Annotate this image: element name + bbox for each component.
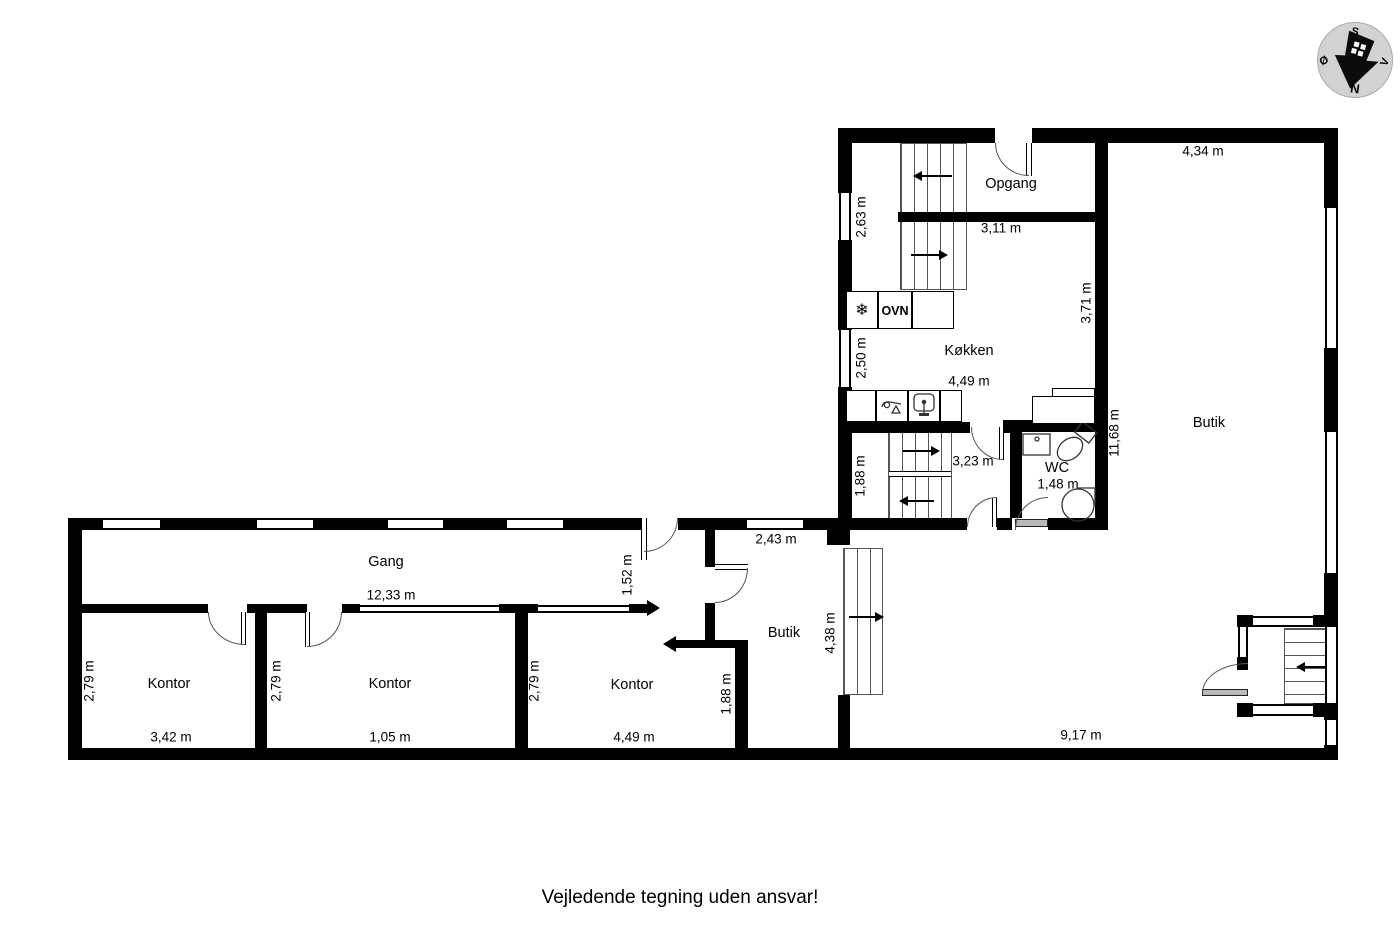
counter (1032, 396, 1095, 424)
wall (75, 604, 208, 613)
wall (1324, 143, 1338, 208)
stairs-arrow-icon (1305, 666, 1327, 668)
wall (838, 128, 995, 143)
glass-partition (538, 605, 629, 613)
room-label-wc: WC (1045, 461, 1069, 476)
wall (838, 695, 850, 748)
stove-icon (879, 394, 905, 418)
compass-rose: S V Ø N (1317, 22, 1393, 98)
sink-icon (911, 392, 937, 420)
wall (68, 518, 103, 530)
window (839, 193, 851, 240)
wall (675, 640, 748, 648)
wall (255, 612, 267, 748)
glass-partition (360, 605, 499, 613)
window (1253, 704, 1313, 716)
window (257, 518, 313, 530)
wall (705, 603, 715, 643)
room-label-kontor1: Kontor (148, 677, 191, 692)
wall (1010, 432, 1022, 518)
room-label-kokken: Køkken (944, 344, 993, 359)
wall (678, 518, 747, 530)
window (1325, 627, 1338, 703)
wall (443, 518, 507, 530)
dim-kontor1-width: 3,42 m (150, 730, 191, 744)
window (388, 518, 443, 530)
wall (803, 518, 850, 530)
wall (342, 604, 360, 613)
dim-kokken-width: 4,49 m (948, 374, 989, 388)
door-arc (644, 518, 678, 552)
window (747, 518, 803, 530)
stairs-arrow-icon (911, 254, 939, 256)
wall (1032, 128, 1338, 143)
stairs-landing (889, 471, 951, 477)
window (507, 518, 563, 530)
door-arc (307, 612, 342, 647)
room-label-kontor3: Kontor (611, 678, 654, 693)
window (1238, 627, 1248, 657)
room-label-opgang: Opgang (985, 177, 1037, 192)
counter (846, 390, 876, 422)
wall (1095, 143, 1108, 530)
dim-kokken-depth: 3,71 m (1079, 282, 1093, 323)
dim-opgang-width: 3,11 m (981, 221, 1021, 235)
wall (160, 518, 257, 530)
disclaimer-text: Vejledende tegning uden ansvar! (542, 887, 819, 909)
dim-butik-mid-stairs: 4,38 m (823, 612, 837, 653)
compass-north-label: N (1349, 81, 1360, 95)
wall (629, 604, 649, 613)
window (1325, 208, 1338, 348)
dim-opgang-window: 2,63 m (854, 196, 868, 237)
wall (563, 518, 643, 530)
dim-kontor2-height: 2,79 m (269, 660, 283, 701)
shower-icon (1061, 487, 1097, 523)
wall (846, 422, 970, 433)
stairs-arrow-icon (908, 500, 934, 502)
stairs-arrow-icon (922, 175, 952, 177)
dim-butik-top-width: 4,34 m (1182, 144, 1223, 158)
dim-kontor1-height: 2,79 m (82, 660, 96, 701)
room-label-gang: Gang (368, 555, 403, 570)
dim-stairs-height: 1,88 m (853, 455, 867, 496)
room-label-butik-mid: Butik (768, 626, 800, 641)
freezer-icon: ❄ (846, 291, 878, 329)
dim-gang-length: 12,33 m (367, 588, 416, 602)
door-arc (715, 568, 748, 603)
wall (68, 518, 82, 758)
window (1325, 432, 1338, 573)
window (1325, 720, 1338, 745)
floor-plan: ❄ OVN Opgang Køkken WC Butik G (0, 0, 1400, 933)
door-arc (208, 612, 245, 645)
wall (1313, 615, 1333, 627)
dim-butik-height: 11,68 m (1107, 409, 1121, 457)
room-label-kontor2: Kontor (369, 677, 412, 692)
oven-label: OVN (878, 291, 912, 329)
wall (838, 128, 852, 193)
counter (940, 390, 962, 422)
door-arc (995, 143, 1029, 176)
window (839, 330, 851, 387)
window (1253, 616, 1313, 627)
dim-kontor3-width: 4,49 m (613, 730, 654, 744)
wall-end-cap (663, 636, 676, 652)
counter (1052, 388, 1095, 397)
wall (313, 518, 388, 530)
wall (850, 518, 967, 530)
dim-stairs-width: 3,23 m (952, 454, 993, 468)
dim-wc-width: 1,48 m (1037, 477, 1078, 491)
stairs-arrow-icon (849, 616, 875, 618)
room-label-butik-right: Butik (1193, 416, 1225, 431)
dim-butik-bottom-width: 9,17 m (1060, 728, 1101, 742)
wall (1313, 703, 1333, 717)
dim-butik-mid-window: 2,43 m (755, 532, 796, 546)
dim-kontor3-height: 2,79 m (527, 660, 541, 701)
wall (1324, 348, 1338, 432)
dim-kokken-window: 2,50 m (854, 337, 868, 378)
door-arc (1202, 663, 1248, 693)
window (103, 518, 160, 530)
wall (735, 648, 748, 748)
washbasin-icon (1022, 433, 1051, 456)
wall (68, 748, 1338, 760)
wall (1237, 615, 1253, 627)
wall (705, 530, 715, 567)
dim-kontor2-width: 1,05 m (369, 730, 410, 744)
counter (912, 291, 954, 329)
dim-entry-door: 1,52 m (620, 554, 634, 595)
wall (1237, 703, 1253, 717)
stairs-arrow-icon (903, 450, 931, 452)
wall (997, 518, 1012, 530)
dim-kontor3-side: 1,88 m (719, 673, 733, 714)
door-arc (967, 497, 997, 527)
wall-end-cap (647, 600, 660, 616)
